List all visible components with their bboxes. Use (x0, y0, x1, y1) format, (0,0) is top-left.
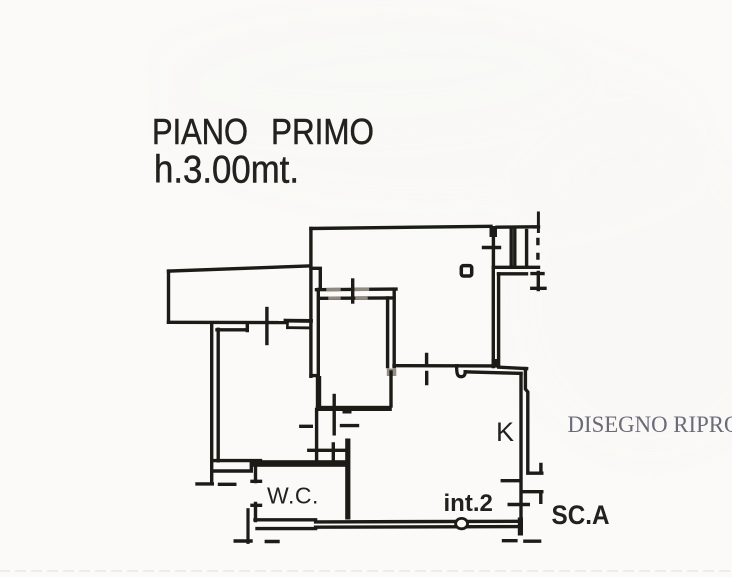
svg-text:h.3.00mt.: h.3.00mt. (154, 149, 299, 192)
svg-text:DISEGNO RIPRO: DISEGNO RIPRO (568, 412, 732, 438)
svg-text:PIANO: PIANO (152, 111, 248, 152)
svg-text:W.C.: W.C. (267, 483, 319, 509)
svg-text:int.2: int.2 (444, 490, 493, 517)
svg-text:PRIMO: PRIMO (271, 111, 374, 152)
svg-text:K: K (496, 417, 514, 447)
svg-text:SC.A: SC.A (552, 500, 610, 530)
